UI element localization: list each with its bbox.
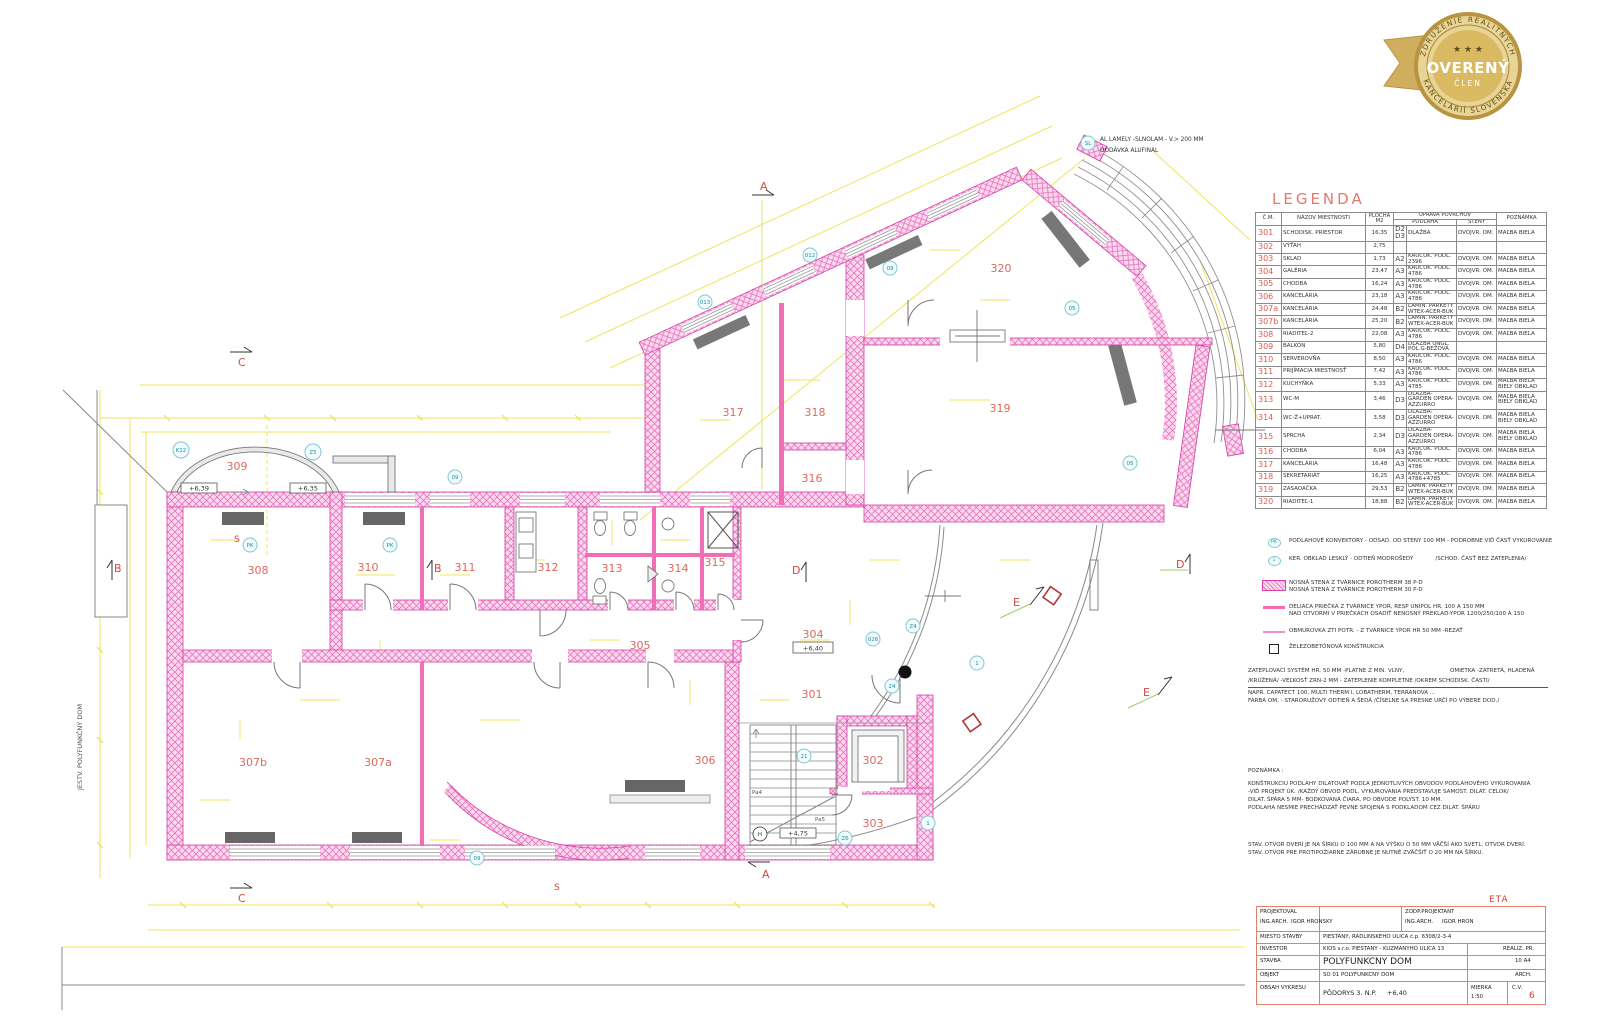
note-poznamka-1: KONŠTRUKCIU PODLAHY DILATOVAŤ PODĽA JEDN…: [1248, 781, 1530, 789]
svg-text:PK: PK: [387, 543, 394, 549]
legend-row: 309BALKÓN5,80D4DLAŽBA UNGL. POL.G-BEŽOVÁ: [1256, 341, 1547, 354]
level-mark: +6,35: [298, 485, 318, 493]
legend-row: 308RIADITEĽ-222,08A3KAUČUK. PODL. 4786DV…: [1256, 328, 1547, 341]
svg-text:PK: PK: [247, 543, 254, 549]
room-label: 310: [358, 561, 379, 574]
svg-text:DODÁVKA ALUFINAL: DODÁVKA ALUFINAL: [1100, 147, 1159, 154]
tb-stavba-label: STAVBA: [1260, 958, 1281, 964]
legend-row: 304GALÉRIA23,47A3KAUČUK. PODL. 4786DVOJV…: [1256, 266, 1547, 279]
svg-text:D: D: [792, 564, 800, 577]
tb-miesto-label: MIESTO STAVBY: [1260, 934, 1302, 940]
room-label: 302: [863, 754, 884, 767]
svg-text:09: 09: [474, 856, 481, 862]
col-num: Č.M.: [1256, 213, 1282, 226]
room-label: 308: [248, 564, 269, 577]
legend-row: 311PRIJÍMACIA MIESTNOSŤ7,42A3KAUČUK. POD…: [1256, 366, 1547, 379]
room-label: 307a: [364, 756, 392, 769]
svg-text:B: B: [114, 562, 122, 575]
tb-projektoval-label: PROJEKTOVAL: [1260, 909, 1297, 915]
sun-lamella: [1108, 343, 1137, 406]
svg-text:E: E: [1143, 686, 1150, 699]
room-label: 301: [802, 688, 823, 701]
tb-cv: 6: [1529, 991, 1535, 1001]
legend-table: Č.M. NÁZOV MIESTNOSTI PLOCHA M2 ÚPRAVA P…: [1255, 212, 1547, 509]
note-poznamka-2: -VIĎ PROJEKT ÚK. /KAŽDÝ OBVOD PODL. VYKU…: [1248, 789, 1509, 797]
note-poznamka-3: DILAT. ŠPÁRA 5 MM- BODKOVANÁ ČIARA, PO O…: [1248, 797, 1442, 805]
legend-row: 312KUCHYŇKA5,33A3KAUČUK. PODL. 4785DVOJV…: [1256, 379, 1547, 392]
legend-row: 307bKANCELÁRIA25,20B2LAMIN. PARKETY WTEX…: [1256, 316, 1547, 329]
col-name: NÁZOV MIESTNOSTI: [1282, 213, 1366, 226]
tb-mierka-label: MIERKA: [1471, 985, 1492, 991]
badge-subtitle: ČLEN: [1454, 79, 1482, 88]
legend-title: LEGENDA: [1272, 190, 1365, 208]
title-block: PROJEKTOVAL ING.ARCH. IGOR HRONSKÝ ZODP.…: [1256, 906, 1546, 1005]
tb-mierka: 1:50: [1471, 994, 1483, 1000]
tb-realiz: REALIZ. PR.: [1503, 946, 1534, 952]
tb-zodp-role: ING.ARCH.: [1405, 919, 1433, 925]
tb-obsah: PÔDORYS 3. N.P.: [1323, 989, 1377, 997]
svg-text:A: A: [762, 868, 770, 881]
legend-row: 319ZASADAČKA29,53B2LAMIN. PARKETY WTEX-A…: [1256, 484, 1547, 497]
svg-text:E: E: [1013, 596, 1020, 609]
svg-text:05: 05: [1069, 306, 1076, 312]
legend-row: 313WC-M3,46D3DLAŽBA-GARDEN OPERA-AZZURRO…: [1256, 391, 1547, 409]
arc-wall-stub: [1223, 424, 1244, 456]
room-label: 312: [538, 561, 559, 574]
col-area: PLOCHA M2: [1366, 213, 1394, 226]
svg-text:09: 09: [887, 266, 894, 272]
svg-text:05: 05: [1127, 461, 1134, 467]
drawing-sheet: +6,39 +6,35 +6,40 +4,75 309 308 310 311 …: [0, 0, 1600, 1034]
tb-cv-label: Č.V.: [1512, 985, 1522, 991]
svg-text:H: H: [758, 832, 762, 838]
room-label: 319: [990, 402, 1011, 415]
legend-row: 317KANCELÁRIA16,48A3KAUČUK. PODL. 4786DV…: [1256, 459, 1547, 472]
room-label: 311: [455, 561, 476, 574]
wall-hatch-icon: [1259, 580, 1289, 591]
tb-objekt: SO 01 POLYFUNKČNÝ DOM: [1323, 972, 1394, 978]
legend-row: 320RIADITEĽ-118,88B2LAMIN. PARKETY WTEX-…: [1256, 496, 1547, 509]
floor-plan: +6,39 +6,35 +6,40 +4,75 309 308 310 311 …: [0, 0, 1600, 1034]
legend-symbol-partition: DELIACA PRIEČKA Z TVÁRNICE YPOR, RESP UN…: [1259, 604, 1559, 619]
svg-text:Z6: Z6: [841, 836, 849, 842]
svg-text:D: D: [1176, 558, 1184, 571]
one-icon: 1: [1259, 556, 1289, 566]
legend-row: 310SERVEROVŇA8,50A3KAUČUK. PODL. 4786DVO…: [1256, 354, 1547, 367]
legend-symbol-concrete: ŽELEZOBETÓNOVÁ KONŠTRUKCIA: [1259, 644, 1559, 654]
lamely-note: AL LAMELY -SLNOLAM - V.> 200 MM DODÁVKA …: [1100, 137, 1204, 154]
legend-row: 316CHODBA6,04A3KAUČUK. PODL. 4786DVOJVR.…: [1256, 446, 1547, 459]
legend-symbol-obmurovka: OBMUROVKA ZTI POTR. - Z TVÁRNICE YPOR HR…: [1259, 628, 1559, 635]
note-insulation-1r: OMIETKA -ZATRETÁ, HLADENÁ: [1450, 668, 1535, 676]
partition-line-icon: [1259, 604, 1289, 609]
tb-format: 10 A4: [1515, 958, 1531, 964]
note-insulation-4: FARBA OM. - STARORUŽOVÝ ODTIEŇ A ŠEDÁ /Č…: [1248, 698, 1499, 706]
curved-glass-facade: [712, 523, 1103, 853]
room-label: 306: [695, 754, 716, 767]
tb-projektoval-name: IGOR HRONSKÝ: [1291, 919, 1333, 925]
svg-text:Pa5: Pa5: [815, 817, 825, 823]
note-stav-1: STAV. OTVOR DVERÍ JE NA ŠÍRKU O 100 MM A…: [1248, 842, 1526, 850]
legend-row: 315SPRCHA2,34D3DLAŽBA-GARDEN OPERA-AZZUR…: [1256, 428, 1547, 446]
svg-text:24: 24: [889, 684, 896, 690]
svg-text:013: 013: [700, 300, 711, 306]
svg-text:Z5: Z5: [309, 450, 317, 456]
room-label: 315: [705, 556, 726, 569]
tb-level: +6,40: [1387, 989, 1407, 997]
legend-symbol-tile: 1 KER. OBKLAD LESKLÝ - ODTIEŇ MODROŠEDÝ …: [1259, 556, 1559, 566]
svg-text:S: S: [234, 535, 240, 545]
room-label: 317: [723, 406, 744, 419]
room-label: 320: [991, 262, 1012, 275]
legend-row: 305CHODBA16,24A3KAUČUK. PODL. 4786DVOJVR…: [1256, 278, 1547, 291]
room-label: 314: [668, 562, 689, 575]
walls: [167, 167, 1212, 860]
room-label: 318: [805, 406, 826, 419]
tb-investor: KIOS s.r.o. PIEŠŤANY - KUZMÁNYHO ULICA 1…: [1323, 946, 1444, 952]
legend-symbol-wall: NOSNÁ STENA Z TVÁRNICE POROTHERM 38 P-DN…: [1259, 580, 1559, 595]
legend-row: 306KANCELÁRIA23,18A3KAUČUK. PODL. 4786DV…: [1256, 291, 1547, 304]
legend-row: 301SCHODISK. PRIESTOR16,35D2 D3DLAŽBADVO…: [1256, 226, 1547, 242]
note-title: POZNÁMKA :: [1248, 768, 1284, 776]
etapa-label: ETA: [1489, 895, 1509, 905]
tb-objekt-label: OBJEKT: [1260, 972, 1279, 978]
legend-row: 307aKANCELÁRIA24,48B2LAMIN. PARKETY WTEX…: [1256, 303, 1547, 316]
balcony-306: [610, 795, 710, 803]
room-label: 304: [803, 628, 824, 641]
external-stair-arcs: [1074, 146, 1245, 443]
svg-text:SL: SL: [1085, 141, 1092, 147]
svg-text:Pa4: Pa4: [752, 790, 762, 796]
legend-table-body: 301SCHODISK. PRIESTOR16,35D2 D3DLAŽBADVO…: [1256, 226, 1547, 509]
tb-miesto: PIEŠŤANY, RADLINSKÉHO ULICA č.p. 6308/2-…: [1323, 934, 1451, 940]
level-mark: +6,40: [803, 645, 823, 653]
room-label: 305: [630, 639, 651, 652]
room-label: 316: [802, 472, 823, 485]
tb-obsah-label: OBSAH VÝKRESU: [1260, 985, 1306, 991]
badge-stars: ★ ★ ★: [1453, 45, 1483, 55]
svg-text:C: C: [238, 892, 246, 905]
tb-stavba: POLYFUNKČNÝ DOM: [1323, 957, 1412, 967]
level-mark: +4,75: [788, 830, 808, 838]
tb-investor-label: INVESTOR: [1260, 946, 1287, 952]
svg-text:09: 09: [452, 475, 459, 481]
svg-text:026: 026: [868, 637, 879, 643]
badge-title: OVERENÝ: [1427, 58, 1511, 77]
svg-text:012: 012: [805, 253, 816, 259]
svg-text:K12: K12: [176, 448, 187, 454]
note-insulation-1: ZATEPLOVACÍ SYSTÉM HR. 50 MM -PLATNE Z M…: [1248, 668, 1404, 676]
svg-text:C: C: [238, 356, 246, 369]
room-label: 303: [863, 817, 884, 830]
legend-row: 314WC-Ž+UPRAT.3,58D3DLAŽBA-GARDEN OPERA-…: [1256, 409, 1547, 427]
svg-text:AL LAMELY -SLNOLAM - V.> 200 M: AL LAMELY -SLNOLAM - V.> 200 MM: [1100, 137, 1204, 143]
tb-zodp-name: IGOR HRON: [1442, 919, 1474, 925]
note-stav-2: STAV. OTVOR PRE PROTIPOŽIARNE ZÁRUBNE JE…: [1248, 850, 1483, 858]
sanitary-fixtures: [516, 512, 674, 604]
adjacent-building-label: JESTV. POLYFUNKČNÝ DOM: [75, 704, 84, 791]
level-mark: +6,39: [189, 485, 209, 493]
doors: [274, 300, 934, 815]
svg-text:Z4: Z4: [909, 624, 917, 630]
legend-symbol-pk: PK PODLAHOVÉ KONVEKTORY - ODSAD. OD STEN…: [1259, 538, 1559, 548]
svg-text:1: 1: [926, 821, 930, 827]
col-note: POZNÁMKA: [1497, 213, 1547, 226]
svg-text:B: B: [434, 562, 442, 575]
legend-row: 318SEKRETARIÁT16,25A3KAUČUK. PODL. 4786+…: [1256, 471, 1547, 484]
facade-column: [963, 714, 981, 732]
pk-icon: PK: [1259, 538, 1289, 548]
svg-text:S: S: [554, 883, 560, 893]
note-insulation-2: /KRÚŽENÁ/ -VEĽKOSŤ ZRN-2 MM - ZATEPLENIE…: [1248, 678, 1490, 686]
divider: [1248, 687, 1548, 688]
room-label: 309: [227, 460, 248, 473]
badge-overeny: ZDRUŽENIE REALITNÝCH KANCELÁRIÍ SLOVENSK…: [1384, 12, 1522, 120]
svg-text:21: 21: [801, 754, 808, 760]
tb-projektoval-role: ING.ARCH.: [1260, 919, 1288, 925]
svg-text:A: A: [760, 180, 768, 193]
note-poznamka-4: PODLAHA NESMIE PRECHÁDZAŤ PEVNE SPOJENÁ …: [1248, 805, 1480, 813]
thin-line-icon: [1259, 628, 1289, 633]
legend-row: 302VÝŤAH2,75: [1256, 241, 1547, 253]
legend-table-header: Č.M. NÁZOV MIESTNOSTI PLOCHA M2 ÚPRAVA P…: [1256, 213, 1547, 226]
svg-text:1: 1: [975, 661, 979, 667]
tb-arch: ARCH.: [1515, 972, 1532, 978]
legend-row: 303SKLAD1,73A2KAUČUK. PODL. 2396DVOJVR. …: [1256, 253, 1547, 266]
room-label: 307b: [239, 756, 267, 769]
tb-zodp-label: ZODP.PROJEKTANT: [1405, 909, 1454, 915]
concrete-square-icon: [1259, 644, 1289, 654]
note-insulation-3: NAPR. CAPATECT 100, MULTI THERM I, LOBAT…: [1248, 690, 1435, 698]
facade-column: [1043, 587, 1061, 605]
room-label: 313: [602, 562, 623, 575]
